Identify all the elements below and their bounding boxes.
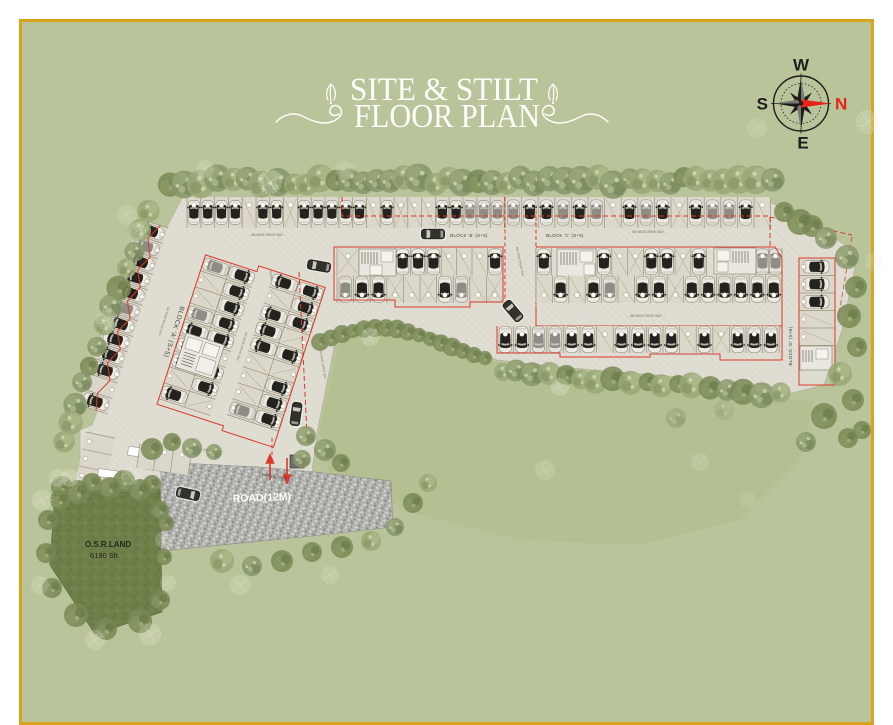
svg-text:BLOCK ‘B’ (S+5): BLOCK ‘B’ (S+5) (450, 233, 488, 238)
svg-text:O.S.R.LAND: O.S.R.LAND (85, 540, 131, 549)
svg-text:S: S (757, 95, 768, 114)
svg-text:ROAD(12M): ROAD(12M) (233, 491, 292, 505)
svg-text:N: N (835, 95, 847, 114)
svg-text:6190 Sft.: 6190 Sft. (90, 551, 120, 560)
svg-text:E: E (797, 134, 808, 153)
svg-text:BLOCK ‘D’ (S+5): BLOCK ‘D’ (S+5) (788, 326, 793, 365)
svg-text:← 6M WIDE DRIVE WAY →: ← 6M WIDE DRIVE WAY → (247, 233, 287, 237)
svg-text:W: W (793, 56, 810, 75)
svg-text:FLOOR PLAN: FLOOR PLAN (354, 98, 540, 135)
svg-text:← 6M WIDE DRIVE WAY →: ← 6M WIDE DRIVE WAY → (628, 230, 668, 234)
svg-text:← 5M WIDE DRIVE WAY →: ← 5M WIDE DRIVE WAY → (626, 314, 666, 318)
svg-text:BLOCK ‘C’ (S+5): BLOCK ‘C’ (S+5) (546, 233, 584, 238)
